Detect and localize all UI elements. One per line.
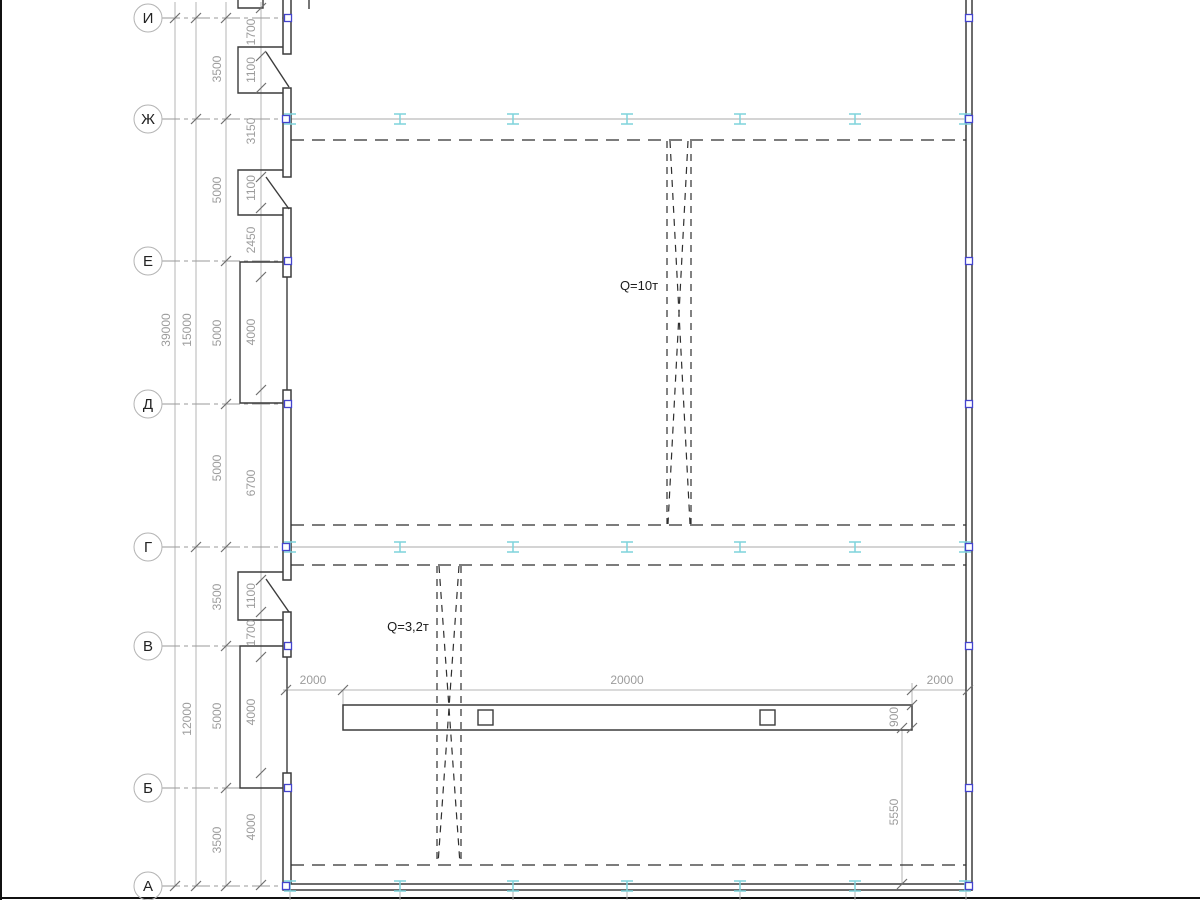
dimension-text: 3500 — [210, 55, 224, 82]
dimension-text: 6700 — [244, 469, 258, 496]
crane-capacity-label: Q=3,2т — [387, 619, 429, 634]
row-axis-bubbles: И Ж Е Д Г В Б А — [134, 4, 162, 900]
axis-label: И — [143, 10, 154, 27]
drawing-viewport[interactable]: И Ж Е Д Г В Б А 39000 15000 12000 3500 5… — [0, 0, 1200, 900]
axis-bubble: А — [134, 872, 162, 900]
axis-label: Ж — [141, 111, 155, 128]
dimension-text: 5000 — [210, 454, 224, 481]
dimension-text: 3500 — [210, 826, 224, 853]
bay-dimension-texts: 3500 5000 5000 5000 3500 5000 3500 — [210, 55, 224, 853]
axis-label: Б — [143, 780, 153, 797]
dimension-text: 3500 — [210, 583, 224, 610]
overall-dimension-texts: 39000 15000 12000 — [159, 313, 194, 736]
dimension-text: 1700 — [244, 619, 258, 646]
crane-travel-dashed-lines — [291, 140, 966, 865]
axis-bubble: Б — [134, 774, 162, 802]
row-axis-lines — [162, 18, 283, 886]
axis-bubble: Д — [134, 390, 162, 418]
dimension-text: 1100 — [244, 583, 258, 609]
dimension-text: 15000 — [180, 313, 194, 347]
dimension-text: 12000 — [180, 702, 194, 736]
drawing-frame — [0, 0, 1200, 900]
dimension-text: 5550 — [887, 798, 901, 825]
rail-column-markers — [284, 114, 971, 891]
axis-label: Е — [143, 253, 153, 270]
beam-dimension-texts: 900 5550 — [887, 707, 901, 826]
axis-bubble: В — [134, 632, 162, 660]
crane-10t-outline — [667, 141, 691, 524]
dimension-text: 20000 — [610, 673, 644, 687]
axis-bubble: И — [134, 4, 162, 32]
dimension-text: 39000 — [159, 313, 173, 347]
axis-bubble: Ж — [134, 105, 162, 133]
dimension-text: 2000 — [927, 673, 954, 687]
floor-plan-drawing: И Ж Е Д Г В Б А 39000 15000 12000 3500 5… — [0, 0, 1200, 900]
dimension-text: 1700 — [244, 18, 258, 45]
dimension-text: 1100 — [244, 57, 258, 83]
dimension-text: 5000 — [210, 176, 224, 203]
detail-dimension-texts: 1700 1100 3150 1100 2450 4000 6700 1100 … — [244, 18, 258, 840]
monorail-beam — [343, 705, 912, 730]
dimension-text: 2450 — [244, 226, 258, 253]
dimension-text: 1100 — [244, 175, 258, 201]
dimension-text: 4000 — [244, 813, 258, 840]
dimension-text: 2000 — [300, 673, 327, 687]
bottom-dimension-texts: 2000 20000 2000 — [300, 673, 954, 687]
dimension-text: 5000 — [210, 702, 224, 729]
crane-capacity-labels: Q=10т Q=3,2т — [387, 278, 658, 634]
axis-label: Д — [143, 396, 153, 413]
dimension-text: 4000 — [244, 698, 258, 725]
crane-capacity-label: Q=10т — [620, 278, 658, 293]
dimension-text: 3150 — [244, 117, 258, 144]
dimension-text: 4000 — [244, 318, 258, 345]
dimension-text: 5000 — [210, 319, 224, 346]
axis-label: В — [143, 638, 153, 655]
axis-bubble: Е — [134, 247, 162, 275]
axis-label: А — [143, 878, 153, 895]
crane-rail-lines — [291, 119, 966, 547]
wall-grid-nodes — [283, 15, 973, 890]
axis-bubble: Г — [134, 533, 162, 561]
axis-label: Г — [144, 539, 152, 556]
dimension-text: 900 — [887, 707, 901, 727]
building-walls — [238, 0, 972, 890]
